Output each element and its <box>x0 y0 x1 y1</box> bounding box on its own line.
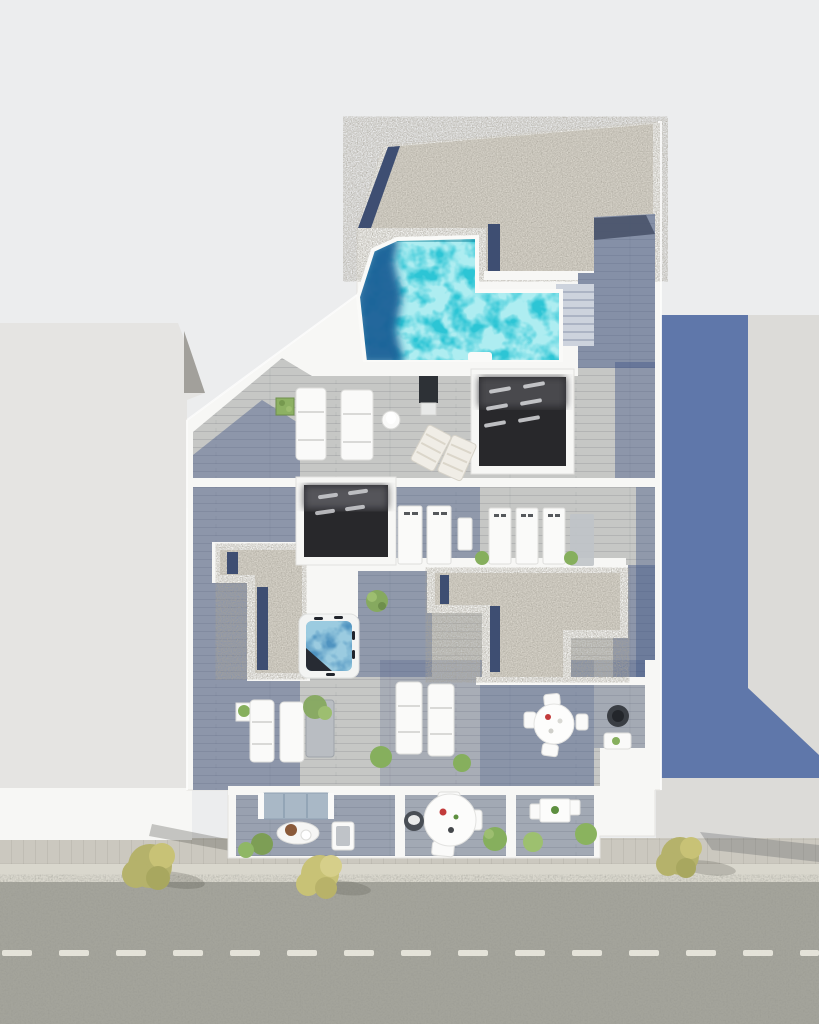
skylight-opening-north <box>471 369 574 474</box>
render-canvas <box>0 0 819 1024</box>
potted-plant <box>366 590 388 612</box>
outdoor-shower-panel <box>419 376 438 415</box>
small-seat <box>604 733 631 749</box>
potted-plant <box>453 754 471 772</box>
skylight-opening-west <box>296 477 396 565</box>
road-center-line <box>2 950 819 956</box>
balconies <box>228 786 600 858</box>
side-table <box>382 411 400 429</box>
fire-bowl <box>607 705 629 727</box>
roof-step-face <box>488 224 500 273</box>
balcony-plant <box>251 833 273 855</box>
planter-box <box>276 398 294 415</box>
right-grounds <box>656 315 819 862</box>
potted-plant <box>475 551 489 565</box>
architectural-render <box>0 0 819 1024</box>
balcony-bush <box>523 832 543 852</box>
balcony-bush <box>575 823 597 845</box>
jacuzzi <box>299 614 359 678</box>
jacuzzi-walkway <box>305 571 358 617</box>
potted-plant <box>564 551 578 565</box>
potted-plant <box>370 746 392 768</box>
daybed-group-southwest <box>236 695 334 762</box>
decor-bowl <box>285 824 297 836</box>
balcony-divider <box>395 790 405 856</box>
balcony-divider <box>506 790 516 856</box>
